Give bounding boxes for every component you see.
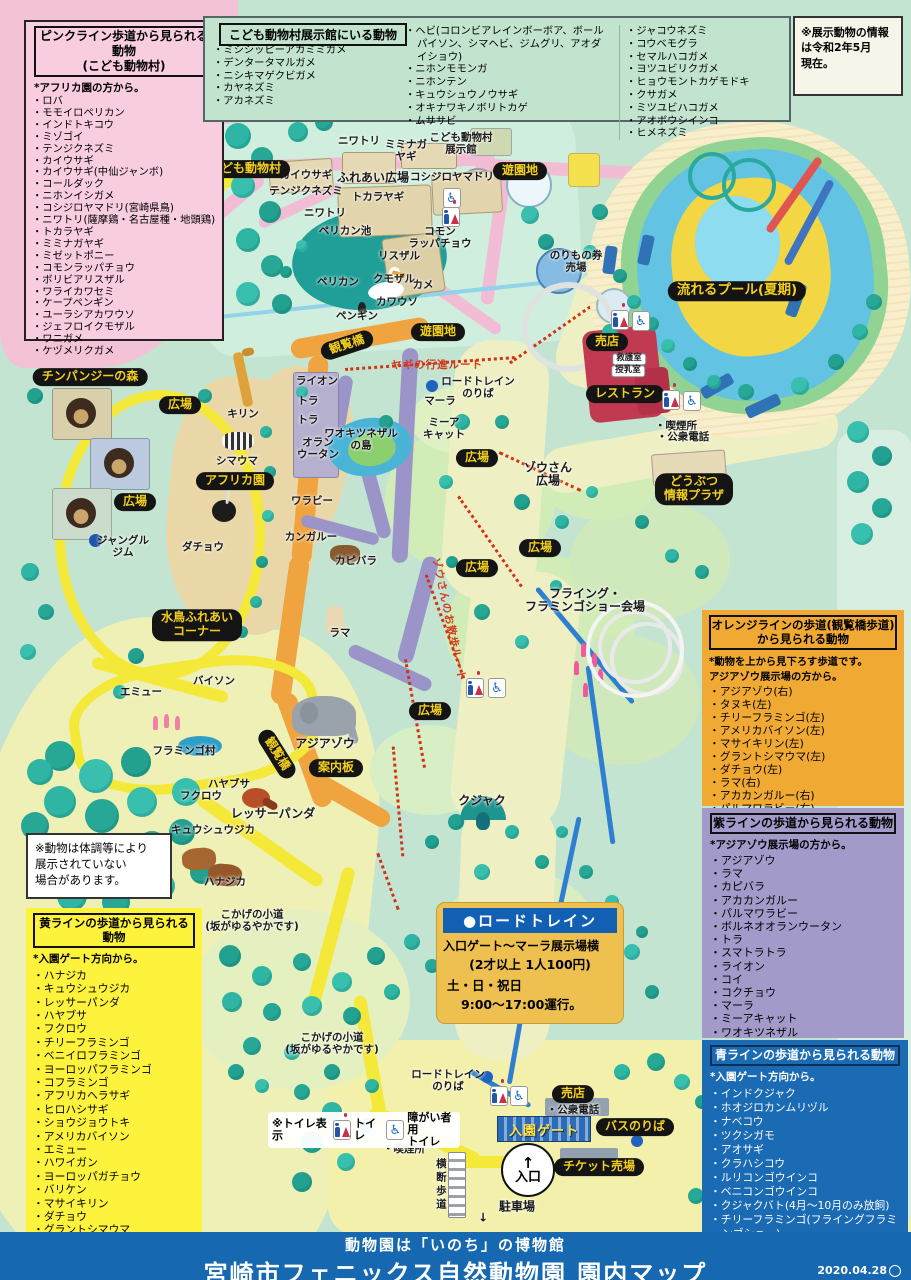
tree bbox=[614, 1064, 630, 1080]
label-emu: エミュー bbox=[120, 687, 162, 699]
list-item: ミツユビハコガメ bbox=[626, 102, 794, 115]
list-item: ミゾゴイ bbox=[32, 132, 216, 144]
footer-title: 宮崎市フェニックス自然動物園 園内マップ bbox=[0, 1254, 911, 1280]
tree bbox=[505, 825, 519, 839]
list-item: レッサーパンダ bbox=[33, 996, 195, 1009]
list-item: ヒョウモントカゲモドキ bbox=[626, 76, 794, 89]
label-ticket-office: チケット売場 bbox=[554, 1158, 644, 1176]
label-parking-arrow: ↓ bbox=[478, 1211, 488, 1224]
show-flamingo bbox=[583, 683, 588, 697]
label-hiroba-4: 広場 bbox=[519, 539, 561, 557]
list-item: ハナジカ bbox=[33, 969, 195, 982]
label-mara: マーラ bbox=[424, 396, 456, 408]
orange-line-legend: オレンジラインの歩道(観覧橋歩道)から見られる動物 *動物を上から見下ろす歩道で… bbox=[702, 610, 904, 806]
toilet-legend: ※トイレ表示 トイレ ♿ 障がい者用 トイレ bbox=[268, 1112, 460, 1148]
label-kujaku: クジャク bbox=[458, 794, 505, 807]
accessible-icon: ♿ bbox=[632, 311, 650, 331]
list-item: マサイキリン bbox=[33, 1197, 195, 1210]
tree bbox=[263, 1003, 281, 1021]
label-chimp-forest: チンパンジーの森 bbox=[33, 368, 148, 386]
tree bbox=[21, 563, 39, 581]
purple-line-legend: 紫ラインの歩道から見られる動物 *アジアゾウ展示場の方から。 アジアゾウラマカピ… bbox=[702, 808, 904, 1038]
orange-legend-title: オレンジラインの歩道(観覧橋歩道)から見られる動物 bbox=[709, 615, 897, 650]
label-hiroba-2: 広場 bbox=[114, 493, 156, 511]
toilet-icon bbox=[442, 207, 460, 227]
list-item: アカネズミ bbox=[213, 95, 403, 108]
tree bbox=[292, 1172, 312, 1192]
tree bbox=[852, 324, 868, 340]
list-item: コフラミンゴ bbox=[33, 1076, 195, 1089]
label-lesser-panda: レッサーパンダ bbox=[231, 807, 315, 820]
entrance-circle: ↑ 入口 bbox=[501, 1143, 555, 1197]
entrance-arrow-icon: ↑ bbox=[522, 1156, 535, 1171]
tree bbox=[20, 644, 36, 660]
list-item: マーラ bbox=[710, 999, 896, 1012]
accessible-icon: ♿ bbox=[386, 1120, 404, 1140]
list-item: ツクシガモ bbox=[710, 1129, 900, 1143]
label-hanajika: ハナジカ bbox=[204, 877, 246, 889]
list-item: バリケン bbox=[33, 1183, 195, 1196]
accessible-icon: ♿ bbox=[488, 678, 506, 698]
list-item: ニホンテン bbox=[405, 76, 607, 89]
toilet-icon bbox=[333, 1120, 351, 1140]
chimp-face bbox=[104, 448, 134, 478]
tree bbox=[38, 604, 54, 620]
label-hiroba-5: 広場 bbox=[456, 559, 498, 577]
purple-legend-note: *アジアゾウ展示場の方から。 bbox=[710, 837, 896, 852]
yellow-legend-title: 黄ラインの歩道から見られる動物 bbox=[33, 913, 195, 948]
accessible-icon: ♿ bbox=[443, 188, 461, 208]
label-komon-rappacho: コモン ラッパチョウ bbox=[409, 226, 472, 250]
list-item: アメリカバイソン(左) bbox=[709, 724, 897, 737]
toilet-icon bbox=[611, 310, 629, 330]
label-tenjiku-nezumi: テンジクネズミ bbox=[269, 186, 343, 198]
label-hayabusa: ハヤブサ bbox=[208, 779, 250, 791]
tree bbox=[296, 240, 308, 252]
label-waokitsunezaru-island: ワオキツネザル の島 bbox=[324, 428, 398, 452]
list-item: コモンラッパチョウ bbox=[32, 263, 216, 275]
tree bbox=[236, 282, 260, 306]
tree bbox=[236, 228, 260, 252]
ostrich-body bbox=[212, 500, 236, 522]
label-hiroba-6: 広場 bbox=[409, 702, 451, 720]
pink-legend-note: *アフリカ園の方から。 bbox=[34, 80, 216, 95]
tree bbox=[613, 269, 627, 283]
tree bbox=[85, 799, 119, 833]
label-pelican: ペリカン bbox=[317, 277, 359, 289]
peacock-body bbox=[476, 812, 490, 830]
tree bbox=[294, 1084, 310, 1100]
list-item: カヤネズミ bbox=[213, 82, 403, 95]
label-dacho: ダチョウ bbox=[182, 542, 224, 554]
exhibit-legend-col1: ミシシッピーアカミミガメデンタータマルガメニシキマゲクビガメカヤネズミアカネズミ bbox=[213, 44, 403, 108]
tree bbox=[256, 556, 268, 568]
label-kawauso: カワウソ bbox=[376, 297, 418, 309]
tree bbox=[27, 759, 53, 785]
list-item: タヌキ(左) bbox=[709, 698, 897, 711]
tree bbox=[738, 384, 754, 400]
toilet-icon bbox=[662, 390, 680, 410]
label-kokage-2: こかげの小道 (坂がゆるやかです) bbox=[285, 1032, 379, 1056]
blue-legend-list: インドクジャクホオジロカンムリヅルナベコウツクシガモアオサギクラハシコウルリコン… bbox=[710, 1087, 900, 1241]
footer-subtitle: 動物園は「いのち」の博物館 bbox=[0, 1234, 911, 1255]
exhibit-info-note: ※展示動物の情報 は令和2年5月 現在。 bbox=[793, 16, 903, 96]
tree bbox=[384, 984, 400, 1000]
tree bbox=[645, 985, 659, 999]
list-item: ベニイロフラミンゴ bbox=[33, 1049, 195, 1062]
tree bbox=[219, 945, 241, 967]
label-parking: 駐車場 bbox=[499, 1200, 535, 1213]
footer-date: 2020.04.28 bbox=[817, 1264, 901, 1277]
list-item: ジャコウネズミ bbox=[626, 25, 794, 38]
chimp-face bbox=[66, 398, 96, 428]
list-item: ケヅメリクガメ bbox=[32, 346, 216, 358]
label-odan-hodo: 横断歩道 bbox=[434, 1158, 446, 1212]
orange-legend-note: *動物を上から見下ろす歩道です。 アジアゾウ展示場の方から。 bbox=[709, 653, 897, 683]
tree bbox=[260, 426, 272, 438]
list-item: インドトキコウ bbox=[32, 120, 216, 132]
tree bbox=[280, 266, 292, 278]
tree bbox=[255, 1079, 269, 1093]
list-item: マサイキリン(左) bbox=[709, 737, 897, 750]
exhibit-legend-title: こども動物村展示館にいる動物 bbox=[219, 23, 407, 46]
list-item: チリーフラミンゴ bbox=[33, 1036, 195, 1049]
tree bbox=[252, 966, 272, 986]
entrance-label: 入口 bbox=[515, 1171, 541, 1184]
label-nagareru-pool: 流れるプール(夏期) bbox=[668, 281, 806, 301]
label-asia-elephant: アジアゾウ bbox=[295, 737, 355, 750]
list-item: クラハシコウ bbox=[710, 1157, 900, 1171]
animal-condition-note: ※動物は体調等により 展示されていない 場合があります。 bbox=[26, 833, 172, 899]
bus-stop-dot bbox=[631, 1135, 643, 1147]
pink-line-legend: ピンクライン歩道から見られる動物(こども動物村) *アフリカ園の方から。 ロバモ… bbox=[24, 20, 224, 341]
list-item: ライオン bbox=[710, 960, 896, 973]
label-jungle-gym: ジャングル ジム bbox=[97, 535, 149, 559]
list-item: ミゼットポニー bbox=[32, 251, 216, 263]
map-footer: 動物園は「いのち」の博物館 宮崎市フェニックス自然動物園 園内マップ 2020.… bbox=[0, 1232, 911, 1280]
flamingo-figure bbox=[153, 716, 158, 730]
label-annaiban: 案内板 bbox=[309, 759, 363, 777]
list-item: ムササビ bbox=[405, 115, 607, 128]
list-item: トラ bbox=[710, 933, 896, 946]
list-item: グラントシマウマ(左) bbox=[709, 750, 897, 763]
tree bbox=[127, 787, 157, 817]
tree bbox=[515, 635, 529, 649]
list-item: ボリビアリスザル bbox=[32, 275, 216, 287]
road-train-hours: 9:00〜17:00運行。 bbox=[443, 994, 617, 1013]
tree bbox=[847, 421, 869, 443]
tree bbox=[866, 294, 882, 310]
tree bbox=[121, 747, 151, 777]
label-koshijiro: コシジロヤマドリ bbox=[410, 172, 494, 184]
label-junyu-shitsu: 授乳室 bbox=[611, 365, 645, 377]
toilet-legend-toilet: トイレ bbox=[354, 1118, 383, 1142]
list-item: コウベモグラ bbox=[626, 38, 794, 51]
label-kokage-1: こかげの小道 (坂がゆるやかです) bbox=[205, 909, 299, 933]
label-tora-1: トラ bbox=[298, 396, 319, 408]
tree bbox=[538, 234, 554, 250]
list-item: ミミナガヤギ bbox=[32, 239, 216, 251]
crosswalk bbox=[448, 1152, 466, 1218]
list-item: ラマ bbox=[710, 867, 896, 880]
entrance-gate-banner: 入園ゲート bbox=[497, 1116, 591, 1142]
tree bbox=[514, 494, 530, 510]
tree bbox=[791, 377, 809, 395]
tree bbox=[27, 388, 43, 404]
list-item: テンジクネズミ bbox=[32, 144, 216, 156]
tree bbox=[343, 1007, 361, 1025]
list-item: キュウシュウジカ bbox=[33, 982, 195, 995]
purple-path bbox=[346, 643, 433, 694]
elephant-walk-dotted bbox=[376, 853, 399, 910]
tree bbox=[579, 865, 593, 879]
label-zousan-hiroba: ゾウさん 広場 bbox=[524, 462, 572, 489]
tree bbox=[495, 415, 509, 429]
toilet-icon bbox=[490, 1086, 508, 1106]
list-item: クサガメ bbox=[626, 89, 794, 102]
list-item: コクチョウ bbox=[710, 986, 896, 999]
road-train-route: 入口ゲート〜マーラ展示場横 bbox=[443, 937, 617, 954]
tree bbox=[556, 826, 568, 838]
elephant-ear bbox=[300, 702, 318, 724]
chimp-face bbox=[66, 498, 96, 528]
list-item: ヒロハシサギ bbox=[33, 1103, 195, 1116]
toilet-legend-accessible: 障がい者用 トイレ bbox=[407, 1112, 456, 1148]
tree bbox=[250, 596, 262, 608]
tree bbox=[872, 446, 892, 466]
label-kangaroo: カンガルー bbox=[285, 532, 338, 544]
tree bbox=[404, 934, 420, 950]
zoo-park-map: こども動物村遊園地遊園地流れるプール(夏期)売店レストランどうぶつ 情報プラザチ… bbox=[0, 0, 911, 1280]
list-item: ミーアキャット bbox=[710, 1012, 896, 1025]
list-item: キュウシュウノウサギ bbox=[405, 89, 607, 102]
tree bbox=[302, 996, 322, 1016]
tree bbox=[627, 295, 641, 309]
tree bbox=[474, 864, 490, 880]
toilet-legend-prefix: ※トイレ表示 bbox=[272, 1118, 330, 1142]
label-kyugo-shitsu: 救護室 bbox=[612, 353, 646, 365]
tree bbox=[425, 835, 439, 849]
list-item: ニホンモモンガ bbox=[405, 63, 607, 76]
exhibit-legend-col2: ヘビ(コロンビアレインボーボア、ボールパイソン、シマヘビ、ジムグリ、アオダイショ… bbox=[405, 25, 607, 127]
list-item: ラマ(右) bbox=[709, 776, 897, 789]
yellow-legend-note: *入園ゲート方向から。 bbox=[33, 951, 195, 966]
list-item: アカカンガルー(右) bbox=[709, 789, 897, 802]
list-item: ヨーロッパフラミンゴ bbox=[33, 1063, 195, 1076]
list-item: エミュー bbox=[33, 1143, 195, 1156]
label-fureai-hiroba: ふれあい広場 bbox=[337, 171, 409, 184]
purple-legend-list: アジアゾウラマカピバラアカカンガルーパルマワラビーボルネオオランウータントラスマ… bbox=[710, 854, 896, 1039]
tree bbox=[665, 549, 679, 563]
tree bbox=[828, 354, 844, 370]
blue-legend-title: 青ラインの歩道から見られる動物 bbox=[710, 1045, 900, 1066]
tree bbox=[661, 339, 675, 353]
label-fukuro: フクロウ bbox=[180, 791, 222, 803]
label-risuzaru: リスザル bbox=[378, 251, 420, 263]
tree bbox=[79, 759, 113, 793]
label-penguin: ペンギン bbox=[336, 311, 378, 323]
list-item: ヨツユビリクガメ bbox=[626, 63, 794, 76]
zebra-figure bbox=[222, 432, 254, 450]
label-llama: ラマ bbox=[330, 628, 351, 640]
tree bbox=[243, 1037, 261, 1055]
tree bbox=[293, 953, 311, 971]
label-shop-1: 売店 bbox=[586, 333, 628, 351]
tree bbox=[636, 926, 648, 938]
toilet-icon bbox=[466, 678, 484, 698]
tree bbox=[647, 1053, 665, 1071]
list-item: パルマワラビー bbox=[710, 907, 896, 920]
label-flamingo-village: フラミンゴ村 bbox=[153, 746, 216, 758]
label-kumozaru: クモザル bbox=[373, 274, 415, 286]
label-bison: バイソン bbox=[193, 676, 235, 688]
list-item: アジアゾウ(右) bbox=[709, 685, 897, 698]
tree bbox=[262, 510, 274, 522]
label-restaurant: レストラン bbox=[586, 385, 664, 403]
ride-yellow-house bbox=[568, 153, 600, 187]
list-item: ルリコンゴウインコ bbox=[710, 1171, 900, 1185]
flamingo-figure bbox=[175, 716, 180, 730]
label-africa-zone: アフリカ園 bbox=[196, 472, 274, 490]
list-item: アメリカバイソン bbox=[33, 1130, 195, 1143]
tree bbox=[288, 122, 308, 142]
footer-date-badge bbox=[889, 1265, 901, 1277]
label-bus-stop: バスのりば bbox=[596, 1118, 674, 1136]
list-item: ダチョウ bbox=[33, 1210, 195, 1223]
label-wallaby: ワラビー bbox=[291, 496, 333, 508]
tree bbox=[592, 204, 608, 220]
list-item: アオボウシインコ bbox=[626, 115, 794, 128]
tree bbox=[128, 648, 144, 664]
label-meerkat: ミーア キャット bbox=[423, 417, 465, 441]
flamingo-figure bbox=[164, 714, 169, 728]
list-item: ボルネオオランウータン bbox=[710, 920, 896, 933]
label-yuenchi-2: 遊園地 bbox=[411, 323, 465, 341]
list-item: ニシキマゲクビガメ bbox=[213, 70, 403, 83]
tree bbox=[535, 855, 549, 869]
list-item: ダチョウ(左) bbox=[709, 763, 897, 776]
show-flamingo bbox=[581, 643, 586, 657]
list-item: チリーフラミンゴ(左) bbox=[709, 711, 897, 724]
accessible-icon: ♿ bbox=[683, 391, 701, 411]
tree bbox=[707, 375, 721, 389]
label-kame: カメ bbox=[413, 280, 434, 292]
blue-legend-note: *入園ゲート方向から。 bbox=[710, 1069, 900, 1084]
blue-line-legend: 青ラインの歩道から見られる動物 *入園ゲート方向から。 インドクジャクホオジロカ… bbox=[702, 1040, 908, 1236]
label-niwatori-1: ニワトリ bbox=[338, 136, 380, 148]
purple-legend-title: 紫ラインの歩道から見られる動物 bbox=[710, 813, 896, 834]
exhibit-hall-legend: こども動物村展示館にいる動物 ミシシッピーアカミミガメデンタータマルガメニシキマ… bbox=[203, 16, 791, 122]
label-lion: ライオン bbox=[296, 376, 338, 388]
tree bbox=[332, 972, 352, 992]
label-norimono-ticket: のりもの券 売場 bbox=[550, 250, 603, 274]
list-item: セマルハコガメ bbox=[626, 51, 794, 64]
tree bbox=[683, 357, 697, 371]
tree bbox=[337, 1153, 355, 1171]
list-item: ヒメネズミ bbox=[626, 127, 794, 140]
exhibit-legend-col3: ジャコウネズミコウベモグラセマルハコガメヨツユビリクガメヒョウモントカゲモドキク… bbox=[619, 25, 794, 140]
label-capybara: カピバラ bbox=[335, 556, 377, 568]
yellow-legend-list: ハナジカキュウシュウジカレッサーパンダハヤブサフクロウチリーフラミンゴベニイロフ… bbox=[33, 969, 195, 1251]
label-shimauma: シマウマ bbox=[216, 456, 258, 468]
tree bbox=[272, 294, 292, 314]
label-yuenchi-1: 遊園地 bbox=[493, 162, 547, 180]
list-item: ホオジロカンムリヅル bbox=[710, 1101, 900, 1115]
roadtrain-stop-dot bbox=[426, 380, 438, 392]
label-hiroba-3: 広場 bbox=[456, 449, 498, 467]
tree bbox=[365, 1079, 379, 1093]
road-train-fare: (2才以上 1人100円) bbox=[443, 954, 617, 973]
list-item: スマトラトラ bbox=[710, 946, 896, 959]
list-item: ショウジョウトキ bbox=[33, 1116, 195, 1129]
label-kyushu-jika: キュウシュウジカ bbox=[171, 825, 255, 837]
label-mizudori-corner: 水鳥ふれあい コーナー bbox=[152, 609, 242, 641]
show-flamingo bbox=[574, 661, 579, 675]
list-item: アカカンガルー bbox=[710, 894, 896, 907]
label-tenji-hall: こども動物村 展示館 bbox=[430, 132, 493, 156]
accessible-icon: ♿ bbox=[510, 1086, 528, 1106]
list-item: ハヤブサ bbox=[33, 1009, 195, 1022]
tree bbox=[872, 498, 892, 518]
label-phone-1: ・公衆電話 bbox=[657, 432, 710, 444]
label-pelican-pond: ペリカン池 bbox=[319, 226, 372, 238]
tree bbox=[225, 123, 251, 149]
label-kirin: キリン bbox=[227, 409, 259, 421]
road-train-info-box: ●ロードトレイン 入口ゲート〜マーラ展示場横 (2才以上 1人100円) 土・日… bbox=[437, 903, 623, 1023]
orange-legend-list: アジアゾウ(右)タヌキ(左)チリーフラミンゴ(左)アメリカバイソン(左)マサイキ… bbox=[709, 685, 897, 815]
coaster-loop bbox=[722, 158, 776, 212]
list-item: フクロウ bbox=[33, 1022, 195, 1035]
list-item: ワオキツネザル bbox=[710, 1026, 896, 1039]
label-yagi-route: ヤギの行進ルート bbox=[391, 360, 483, 372]
list-item: ベニコンゴウインコ bbox=[710, 1185, 900, 1199]
tree bbox=[222, 992, 242, 1012]
road-train-days: 土・日・祝日 bbox=[443, 975, 617, 994]
tree bbox=[44, 786, 76, 818]
tree bbox=[847, 471, 869, 493]
list-item: ヘビ(コロンビアレインボーボア、ボールパイソン、シマヘビ、ジムグリ、アオダイショ… bbox=[405, 25, 607, 63]
list-item: カピバラ bbox=[710, 880, 896, 893]
label-niwatori-2: ニワトリ bbox=[304, 208, 346, 220]
tree bbox=[635, 515, 649, 529]
list-item: ナベコウ bbox=[710, 1115, 900, 1129]
list-item: アジアゾウ bbox=[710, 854, 896, 867]
list-item: ハワイガン bbox=[33, 1156, 195, 1169]
label-info-plaza: どうぶつ 情報プラザ bbox=[655, 473, 733, 505]
list-item: インドクジャク bbox=[710, 1087, 900, 1101]
label-hiroba-1: 広場 bbox=[159, 396, 201, 414]
tree bbox=[555, 515, 569, 529]
list-item: アフリカヘラサギ bbox=[33, 1089, 195, 1102]
list-item: アオサギ bbox=[710, 1143, 900, 1157]
list-item: デンタータマルガメ bbox=[213, 57, 403, 70]
tree bbox=[521, 206, 539, 224]
tree bbox=[851, 523, 873, 545]
tree bbox=[695, 565, 709, 579]
label-shop-2: 売店 bbox=[552, 1085, 594, 1103]
tree bbox=[674, 1074, 690, 1090]
tree bbox=[228, 1064, 244, 1080]
yellow-line-legend: 黄ラインの歩道から見られる動物 *入園ゲート方向から。 ハナジカキュウシュウジカ… bbox=[26, 908, 202, 1240]
tree bbox=[624, 944, 640, 960]
label-flying-show: フライング・ フラミンゴショー会場 bbox=[525, 588, 645, 615]
tree bbox=[367, 947, 385, 965]
label-roadtrain-stop-2: ロードトレイン のりば bbox=[411, 1069, 485, 1093]
list-item: ミシシッピーアカミミガメ bbox=[213, 44, 403, 57]
list-item: オキナワキノボリトカゲ bbox=[405, 102, 607, 115]
label-tora-2: トラ bbox=[298, 415, 319, 427]
tree bbox=[259, 201, 281, 223]
